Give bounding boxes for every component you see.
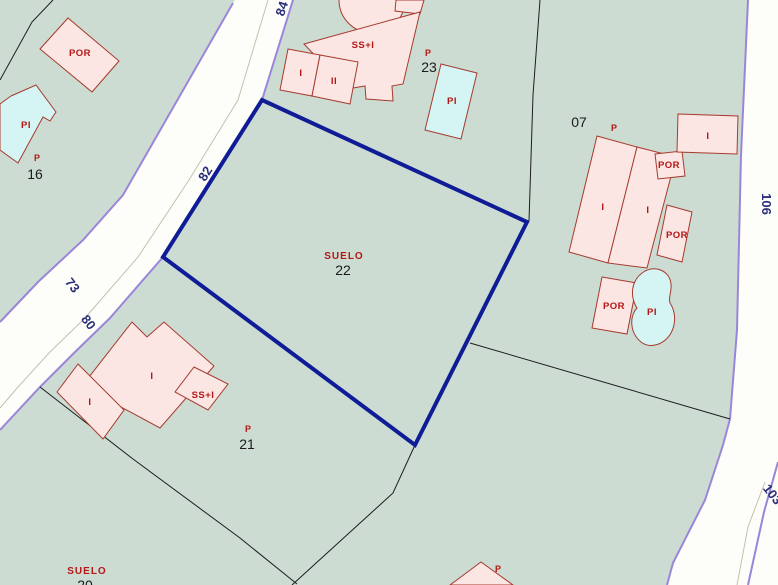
label-parcel-number-21: 21: [239, 436, 255, 452]
label-parcel-number-16: 16: [27, 166, 43, 182]
label-pool-23: PI: [447, 96, 457, 107]
label-i-23: I: [299, 68, 302, 79]
label-parcel-number-07: 07: [571, 114, 587, 130]
label-pool-07: PI: [647, 307, 657, 318]
label-parcel-number-23: 23: [421, 59, 437, 75]
label-i-21-main: I: [150, 371, 153, 382]
cadastral-map[interactable]: POR PI P 16 SS+I I II P 23 PI SUELO 22 0…: [0, 0, 778, 585]
label-por-07-low: POR: [603, 301, 625, 312]
label-suelo-22: SUELO: [324, 251, 363, 262]
label-p-16: P: [34, 153, 40, 163]
label-p-bottom: P: [495, 564, 501, 574]
label-i-07-right: I: [646, 205, 649, 216]
label-parcel-number-22: 22: [335, 262, 351, 278]
label-parcel-number-20: 20: [77, 577, 93, 585]
label-suelo-20: SUELO: [67, 566, 106, 577]
label-por-07-wing: POR: [666, 230, 688, 241]
label-p-23: P: [425, 48, 431, 58]
label-p-07: P: [611, 123, 617, 133]
label-i-07-left: I: [601, 202, 604, 213]
label-p-21: P: [245, 424, 251, 434]
label-ssi-21: SS+I: [192, 390, 215, 401]
label-i-07-ne: I: [706, 131, 709, 142]
label-i-21-small: I: [88, 397, 91, 408]
label-por-16: POR: [69, 48, 91, 59]
label-por-07-top: POR: [658, 160, 680, 171]
label-ssi-23: SS+I: [352, 40, 375, 51]
cadastral-map-viewport[interactable]: POR PI P 16 SS+I I II P 23 PI SUELO 22 0…: [0, 0, 778, 585]
label-ii-23: II: [331, 76, 337, 87]
label-road-106: 106: [759, 193, 774, 215]
label-pool-16: PI: [21, 120, 31, 131]
